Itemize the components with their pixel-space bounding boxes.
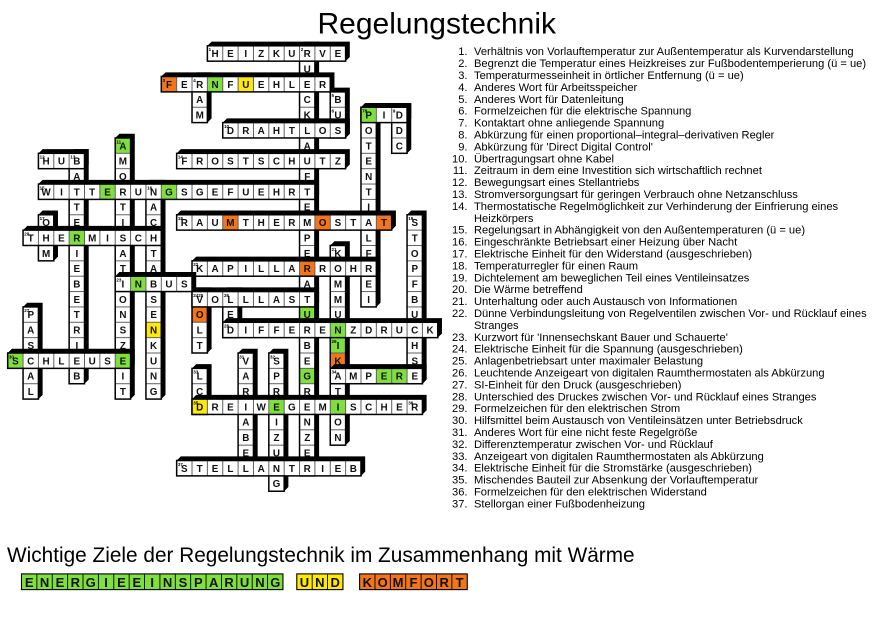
svg-text:G: G [288, 402, 296, 413]
svg-text:U: U [304, 157, 311, 168]
svg-text:Hilfsmittel beim Austausch von: Hilfsmittel beim Austausch von Ventilein… [474, 415, 803, 427]
svg-text:H: H [273, 126, 280, 137]
svg-text:R: R [365, 264, 372, 275]
svg-text:Z: Z [273, 433, 279, 444]
svg-text:12: 12 [40, 155, 46, 160]
svg-text:Begrenzt die Temperatur eines: Begrenzt die Temperatur eines Heizkreise… [474, 58, 866, 70]
svg-text:B: B [304, 341, 311, 352]
svg-text:Z: Z [335, 157, 341, 168]
svg-text:R: R [304, 264, 311, 275]
svg-text:N: N [365, 172, 372, 183]
svg-text:T: T [366, 187, 372, 198]
svg-text:M: M [88, 233, 96, 244]
svg-text:I: I [104, 575, 108, 590]
svg-text:C: C [411, 326, 418, 337]
svg-text:Kurzwort für 'Innensechskant B: Kurzwort für 'Innensechskant Bauer und S… [474, 332, 728, 344]
svg-text:Stromversorgungsart für gering: Stromversorgungsart für geringen Verbrau… [474, 189, 798, 201]
svg-text:U: U [240, 575, 249, 590]
svg-text:34.: 34. [452, 463, 468, 475]
svg-text:31.: 31. [452, 427, 468, 439]
svg-text:18.: 18. [452, 260, 468, 272]
svg-text:A: A [150, 203, 157, 214]
svg-text:E: E [212, 187, 219, 198]
svg-text:Formelzeichen für den elektris: Formelzeichen für den elektrischen Strom [474, 403, 680, 415]
svg-text:N: N [315, 575, 324, 590]
svg-text:I: I [244, 49, 247, 60]
svg-text:W: W [256, 402, 266, 413]
svg-text:14.: 14. [452, 201, 468, 213]
svg-text:R: R [439, 575, 449, 590]
svg-text:S: S [181, 280, 188, 291]
svg-text:Regelungsart in Abhängigkeit v: Regelungsart in Abhängigkeit von den Auß… [474, 225, 805, 237]
svg-text:Temperaturmesseinheit in örtli: Temperaturmesseinheit in örtlicher Entfe… [474, 70, 744, 82]
svg-text:Regelungstechnik: Regelungstechnik [318, 8, 557, 41]
svg-text:29.: 29. [452, 403, 468, 415]
svg-text:Zeitraum in dem eine Investiti: Zeitraum in dem eine Investition sich wi… [474, 165, 763, 177]
svg-text:Dichtelement am beweglichen Te: Dichtelement am beweglichen Teil eines V… [474, 272, 750, 284]
svg-text:I: I [122, 280, 125, 291]
svg-text:L: L [258, 264, 264, 275]
svg-text:F: F [227, 80, 233, 91]
svg-text:21.: 21. [452, 296, 468, 308]
svg-text:U: U [288, 49, 295, 60]
svg-text:F: F [273, 326, 279, 337]
svg-text:4.: 4. [458, 82, 467, 94]
svg-text:Anderes Wort für Datenleitung: Anderes Wort für Datenleitung [474, 94, 624, 106]
svg-text:20: 20 [24, 231, 30, 236]
svg-text:19.: 19. [452, 272, 468, 284]
svg-text:E: E [319, 326, 326, 337]
svg-text:14: 14 [178, 155, 184, 160]
svg-text:N: N [255, 575, 264, 590]
svg-text:T: T [120, 387, 126, 398]
svg-text:B: B [411, 295, 418, 306]
svg-text:I: I [244, 326, 247, 337]
svg-text:R: R [304, 49, 311, 60]
svg-text:T: T [243, 218, 249, 229]
svg-text:27.: 27. [452, 379, 468, 391]
svg-text:20.: 20. [452, 284, 468, 296]
svg-text:R: R [73, 326, 80, 337]
svg-text:U: U [211, 218, 218, 229]
svg-text:G: G [196, 187, 204, 198]
svg-text:D: D [331, 575, 340, 590]
svg-text:C: C [304, 95, 311, 106]
svg-text:P: P [304, 233, 311, 244]
svg-text:15.: 15. [452, 225, 468, 237]
svg-text:S: S [289, 295, 296, 306]
svg-text:I: I [383, 111, 386, 122]
svg-text:A: A [288, 264, 295, 275]
svg-text:23.: 23. [452, 332, 468, 344]
svg-text:13.: 13. [452, 189, 468, 201]
svg-text:11: 11 [116, 139, 121, 144]
svg-text:S: S [227, 157, 234, 168]
svg-text:B: B [242, 433, 249, 444]
svg-text:E: E [133, 575, 142, 590]
svg-text:E: E [74, 295, 81, 306]
svg-text:1.: 1. [458, 46, 467, 58]
svg-text:9.: 9. [458, 141, 467, 153]
svg-text:D: D [396, 111, 403, 122]
svg-text:L: L [197, 326, 203, 337]
svg-text:K: K [273, 49, 281, 60]
svg-text:U: U [89, 356, 96, 367]
svg-text:O: O [211, 157, 219, 168]
svg-text:15: 15 [40, 185, 46, 190]
svg-text:Bewegungsart eines Stellantrie: Bewegungsart eines Stellantriebs [474, 177, 640, 189]
svg-text:F: F [227, 187, 233, 198]
svg-text:2425: 2425 [193, 293, 204, 298]
svg-text:L: L [273, 264, 279, 275]
svg-text:F: F [258, 326, 264, 337]
svg-text:E: E [258, 187, 265, 198]
svg-text:B: B [350, 464, 357, 475]
svg-text:G: G [150, 387, 158, 398]
svg-text:E: E [258, 80, 265, 91]
svg-text:U: U [242, 187, 249, 198]
svg-text:E: E [365, 157, 372, 168]
svg-text:T: T [243, 157, 249, 168]
svg-text:37.: 37. [452, 498, 468, 510]
svg-text:M: M [196, 111, 204, 122]
svg-text:G: G [270, 575, 280, 590]
svg-text:S: S [335, 126, 342, 137]
svg-text:B: B [150, 280, 157, 291]
svg-text:78: 78 [362, 109, 368, 114]
svg-text:O: O [319, 218, 327, 229]
svg-text:L: L [243, 464, 249, 475]
svg-text:H: H [211, 49, 218, 60]
svg-text:S: S [350, 402, 357, 413]
svg-text:I: I [122, 372, 125, 383]
svg-text:2.: 2. [458, 58, 467, 70]
svg-text:H: H [380, 402, 387, 413]
svg-text:Z: Z [304, 433, 310, 444]
svg-text:E: E [381, 372, 388, 383]
svg-text:U: U [396, 326, 403, 337]
svg-text:Stellorgan einer Fußbodenheizu: Stellorgan einer Fußbodenheizung [474, 498, 645, 510]
svg-text:M: M [119, 157, 127, 168]
svg-text:Unterhaltung oder auch Austaus: Unterhaltung oder auch Austausch von Inf… [474, 296, 737, 308]
svg-text:E: E [227, 402, 234, 413]
svg-text:M: M [393, 575, 404, 590]
svg-text:7.: 7. [458, 118, 467, 130]
svg-text:N: N [163, 575, 172, 590]
svg-text:T: T [366, 141, 372, 152]
svg-text:O: O [319, 126, 327, 137]
svg-text:M: M [349, 372, 357, 383]
svg-text:E: E [74, 356, 81, 367]
svg-text:Wichtige Ziele der Regelungste: Wichtige Ziele der Regelungstechnik im Z… [7, 544, 635, 567]
svg-text:L: L [58, 356, 64, 367]
svg-text:I: I [337, 341, 340, 352]
svg-text:P: P [194, 575, 203, 590]
svg-text:I: I [275, 418, 278, 429]
svg-text:H: H [273, 187, 280, 198]
svg-text:22: 22 [193, 262, 199, 267]
svg-text:37: 37 [178, 462, 184, 467]
svg-text:26: 26 [224, 293, 230, 298]
svg-text:O: O [211, 295, 219, 306]
svg-text:I: I [244, 402, 247, 413]
svg-text:35.: 35. [452, 475, 468, 487]
svg-text:O: O [365, 126, 373, 137]
svg-text:O: O [334, 264, 342, 275]
svg-text:T: T [197, 341, 203, 352]
svg-text:U: U [150, 356, 157, 367]
svg-text:31: 31 [239, 354, 245, 359]
svg-text:D: D [396, 126, 403, 137]
svg-text:27: 27 [24, 308, 30, 313]
svg-text:H: H [258, 218, 265, 229]
svg-text:M: M [226, 218, 234, 229]
svg-text:T: T [120, 203, 126, 214]
svg-text:Z: Z [258, 49, 264, 60]
svg-text:E: E [74, 264, 81, 275]
svg-text:8.: 8. [458, 130, 467, 142]
svg-text:V: V [319, 49, 326, 60]
svg-text:C: C [396, 141, 403, 152]
svg-text:E: E [25, 575, 34, 590]
svg-text:T: T [74, 187, 80, 198]
svg-text:E: E [304, 80, 311, 91]
svg-text:G: G [86, 575, 96, 590]
svg-text:A: A [273, 295, 280, 306]
svg-text:N: N [334, 433, 341, 444]
svg-text:U: U [242, 80, 249, 91]
svg-text:Anderes Wort für eine nicht fe: Anderes Wort für eine nicht feste Regelg… [474, 427, 697, 439]
svg-text:A: A [258, 464, 265, 475]
svg-text:N: N [119, 310, 126, 321]
svg-text:R: R [211, 402, 218, 413]
svg-text:36.: 36. [452, 487, 468, 499]
svg-text:17.: 17. [452, 249, 468, 261]
svg-text:O: O [411, 249, 419, 260]
svg-text:S: S [258, 157, 265, 168]
svg-text:U: U [135, 187, 142, 198]
svg-text:U: U [165, 280, 172, 291]
svg-text:F: F [166, 80, 172, 91]
svg-text:C: C [273, 157, 280, 168]
svg-text:R: R [196, 80, 203, 91]
svg-text:M: M [42, 249, 50, 260]
svg-text:R: R [319, 80, 326, 91]
svg-text:O: O [424, 575, 434, 590]
svg-text:R: R [242, 126, 249, 137]
svg-text:R: R [380, 326, 387, 337]
svg-text:R: R [224, 575, 234, 590]
svg-text:E: E [335, 49, 342, 60]
svg-text:S: S [150, 295, 157, 306]
svg-text:N: N [150, 326, 157, 337]
svg-text:N: N [334, 326, 341, 337]
svg-text:A: A [27, 372, 34, 383]
svg-text:Die Wärme betreffend: Die Wärme betreffend [474, 284, 583, 296]
svg-text:L: L [258, 295, 264, 306]
svg-text:H: H [288, 157, 295, 168]
svg-text:I: I [60, 187, 63, 198]
svg-text:S: S [179, 575, 188, 590]
svg-text:R: R [288, 187, 295, 198]
svg-text:32.: 32. [452, 439, 468, 451]
svg-text:30.: 30. [452, 415, 468, 427]
svg-text:Elektrische Einheit für die St: Elektrische Einheit für die Stromstärke … [474, 463, 752, 475]
svg-text:A: A [211, 264, 218, 275]
svg-text:I: I [150, 575, 154, 590]
svg-text:16: 16 [147, 185, 153, 190]
svg-text:Formelzeichen für die elektris: Formelzeichen für die elektrische Spannu… [474, 106, 691, 118]
svg-text:Anzeigeart von digitalen Raumt: Anzeigeart von digitalen Raumthermostate… [474, 451, 764, 463]
svg-text:Verhältnis von Vorlauftemperat: Verhältnis von Vorlauftemperatur zur Auß… [474, 46, 854, 58]
svg-text:Eingeschränkte Betriebsart ein: Eingeschränkte Betriebsart einer Heizung… [474, 237, 738, 249]
svg-text:Stranges: Stranges [474, 320, 519, 332]
svg-text:T: T [320, 157, 326, 168]
svg-text:P: P [227, 264, 234, 275]
svg-text:29: 29 [331, 339, 337, 344]
svg-text:K: K [363, 575, 373, 590]
svg-text:Temperaturregler für einen Rau: Temperaturregler für einen Raum [474, 260, 638, 272]
svg-text:19: 19 [408, 216, 414, 221]
svg-text:T: T [289, 126, 295, 137]
svg-text:C: C [135, 233, 142, 244]
svg-text:F: F [412, 280, 418, 291]
svg-text:E: E [120, 356, 127, 367]
svg-text:T: T [381, 218, 387, 229]
svg-text:T: T [89, 187, 95, 198]
svg-text:T: T [350, 218, 356, 229]
svg-text:E: E [104, 187, 111, 198]
svg-text:L: L [243, 295, 249, 306]
svg-text:A: A [258, 126, 265, 137]
svg-text:17: 17 [40, 216, 46, 221]
svg-text:33: 33 [193, 370, 199, 375]
svg-text:Thermostatische Regelmöglichke: Thermostatische Regelmöglichkeit zur Ver… [474, 201, 839, 213]
svg-text:U: U [58, 157, 65, 168]
svg-text:S: S [335, 218, 342, 229]
svg-text:H: H [43, 233, 50, 244]
svg-text:T: T [289, 464, 295, 475]
svg-text:M: M [303, 218, 311, 229]
svg-text:Elektrische Einheit für die Sp: Elektrische Einheit für die Spannung (au… [474, 344, 743, 356]
svg-text:T: T [197, 464, 203, 475]
svg-text:T: T [74, 203, 80, 214]
svg-text:E: E [117, 575, 126, 590]
svg-text:32: 32 [270, 354, 276, 359]
svg-text:SI-Einheit für den Druck (ausg: SI-Einheit für den Druck (ausgeschrieben… [474, 379, 682, 391]
svg-text:E: E [396, 402, 403, 413]
svg-text:10: 10 [224, 124, 230, 129]
svg-text:C: C [27, 356, 34, 367]
svg-text:H: H [273, 80, 280, 91]
svg-text:Unterschied des Druckes zwisch: Unterschied des Druckes zwischen Vor- un… [474, 391, 817, 403]
svg-text:T: T [74, 310, 80, 321]
svg-text:R: R [71, 575, 81, 590]
svg-text:Differenztemperatur zwischen V: Differenztemperatur zwischen Vor- und Rü… [474, 439, 714, 451]
svg-text:I: I [106, 233, 109, 244]
svg-text:E: E [227, 49, 234, 60]
svg-text:T: T [304, 187, 310, 198]
svg-text:E: E [181, 80, 188, 91]
svg-text:E: E [304, 356, 311, 367]
svg-text:R: R [396, 372, 403, 383]
svg-text:A: A [196, 95, 203, 106]
svg-text:22.: 22. [452, 308, 468, 320]
svg-text:I: I [244, 264, 247, 275]
svg-text:S: S [120, 326, 127, 337]
svg-text:R: R [304, 464, 311, 475]
svg-text:Abkürzung für 'Direct Digital: Abkürzung für 'Direct Digital Control' [474, 141, 653, 153]
svg-text:O: O [119, 295, 127, 306]
svg-text:3.: 3. [458, 70, 467, 82]
svg-text:I: I [321, 464, 324, 475]
svg-text:O: O [378, 575, 388, 590]
svg-text:S: S [120, 233, 127, 244]
svg-text:R: R [119, 187, 126, 198]
svg-text:A: A [209, 575, 219, 590]
svg-text:Z: Z [350, 326, 356, 337]
svg-text:Anderes Wort für Arbeitsspeich: Anderes Wort für Arbeitsspeicher [474, 82, 638, 94]
svg-text:H: H [150, 233, 157, 244]
svg-text:6.: 6. [458, 106, 467, 118]
svg-text:O: O [196, 310, 204, 321]
svg-text:S: S [104, 356, 111, 367]
svg-text:R: R [288, 218, 295, 229]
svg-text:R: R [319, 264, 326, 275]
svg-text:T: T [412, 233, 418, 244]
svg-text:A: A [119, 249, 126, 260]
svg-text:H: H [43, 356, 50, 367]
svg-text:N: N [304, 418, 311, 429]
svg-text:10.: 10. [452, 153, 468, 165]
svg-text:M: M [334, 280, 342, 291]
svg-text:D: D [365, 326, 372, 337]
svg-text:I: I [367, 295, 370, 306]
svg-text:L: L [289, 80, 295, 91]
svg-text:Kontaktart ohne anliegende Spa: Kontaktart ohne anliegende Spannung [474, 118, 664, 130]
svg-text:E: E [335, 464, 342, 475]
svg-text:A: A [27, 326, 34, 337]
svg-text:A: A [242, 418, 249, 429]
svg-text:11.: 11. [453, 165, 468, 177]
svg-text:13: 13 [70, 155, 76, 160]
svg-text:36: 36 [408, 400, 414, 405]
svg-text:R: R [196, 157, 203, 168]
svg-text:M: M [318, 402, 326, 413]
svg-text:B: B [73, 372, 80, 383]
svg-text:L: L [227, 464, 233, 475]
svg-text:28: 28 [224, 324, 230, 329]
svg-text:N: N [150, 372, 157, 383]
svg-text:T: T [456, 575, 464, 590]
svg-text:28.: 28. [452, 391, 468, 403]
svg-text:E: E [365, 280, 372, 291]
svg-text:A: A [365, 218, 372, 229]
svg-text:Elektrische Einheit für den Wi: Elektrische Einheit für den Widerstand (… [474, 249, 752, 261]
svg-text:21: 21 [331, 247, 337, 252]
svg-text:5.: 5. [458, 94, 467, 106]
svg-text:E: E [58, 233, 65, 244]
svg-text:A: A [196, 218, 203, 229]
svg-text:N: N [135, 280, 142, 291]
svg-text:Abkürzung für einen proportion: Abkürzung für einen proportional–integra… [474, 130, 775, 142]
svg-text:E: E [411, 372, 418, 383]
svg-text:G: G [165, 187, 173, 198]
svg-text:L: L [28, 387, 34, 398]
svg-text:18: 18 [178, 216, 184, 221]
svg-text:M: M [334, 295, 342, 306]
svg-text:U: U [300, 575, 309, 590]
